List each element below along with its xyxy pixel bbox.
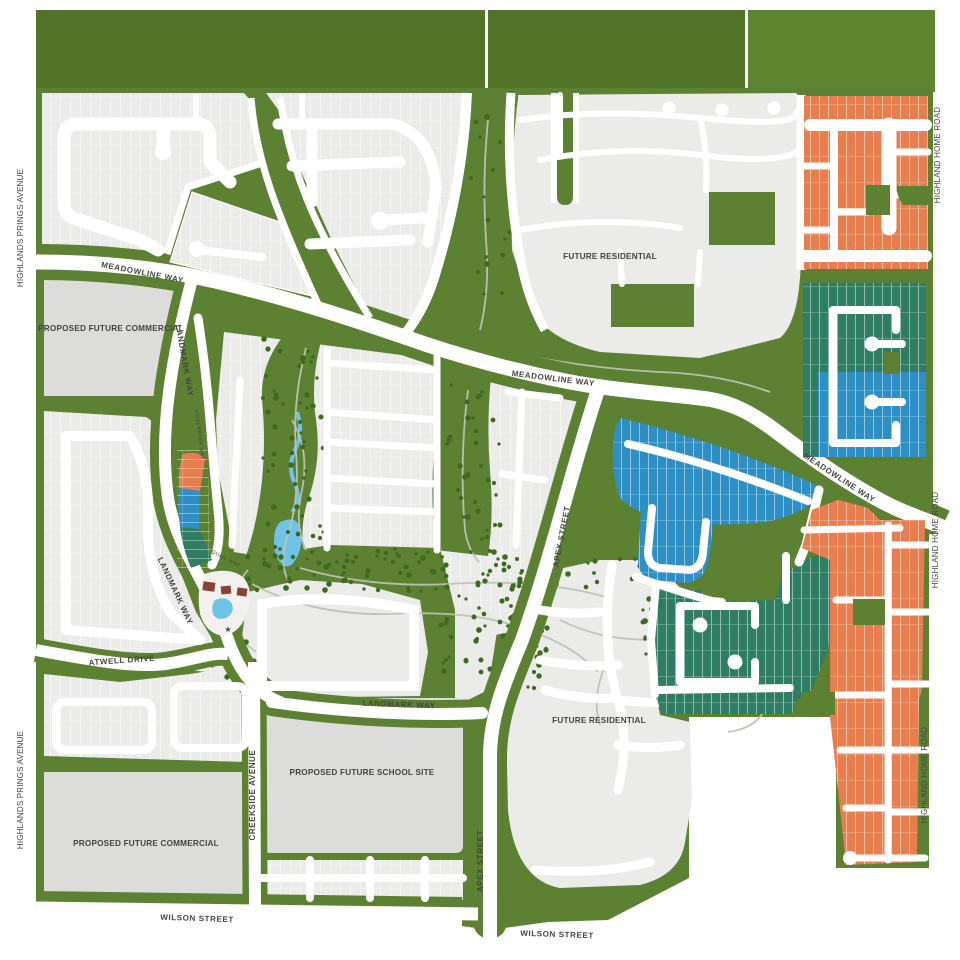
svg-text:PROPOSED FUTURE COMMERCIAL: PROPOSED FUTURE COMMERCIAL [38, 324, 184, 333]
svg-text:APEX STREET: APEX STREET [476, 830, 485, 892]
svg-text:CREEKSIDE AVENUE: CREEKSIDE AVENUE [248, 749, 257, 840]
svg-text:HIGHLANDS PRINGS AVENUE: HIGHLANDS PRINGS AVENUE [16, 731, 25, 849]
svg-text:HIGHLAND HOME ROAD: HIGHLAND HOME ROAD [933, 107, 942, 204]
svg-text:HIGHLAND HOME ROAD: HIGHLAND HOME ROAD [931, 492, 940, 589]
svg-text:FUTURE RESIDENTIAL: FUTURE RESIDENTIAL [552, 716, 646, 725]
svg-text:PROPOSED FUTURE SCHOOL SITE: PROPOSED FUTURE SCHOOL SITE [290, 768, 435, 777]
svg-text:HIGHLANDS PRINGS AVENUE: HIGHLANDS PRINGS AVENUE [16, 169, 25, 287]
svg-text:PROPOSED FUTURE COMMERCIAL: PROPOSED FUTURE COMMERCIAL [73, 839, 219, 848]
svg-text:FUTURE RESIDENTIAL: FUTURE RESIDENTIAL [563, 252, 657, 261]
svg-text:★: ★ [224, 625, 231, 634]
svg-text:HIGHLAND HOME ROAD: HIGHLAND HOME ROAD [920, 727, 929, 824]
